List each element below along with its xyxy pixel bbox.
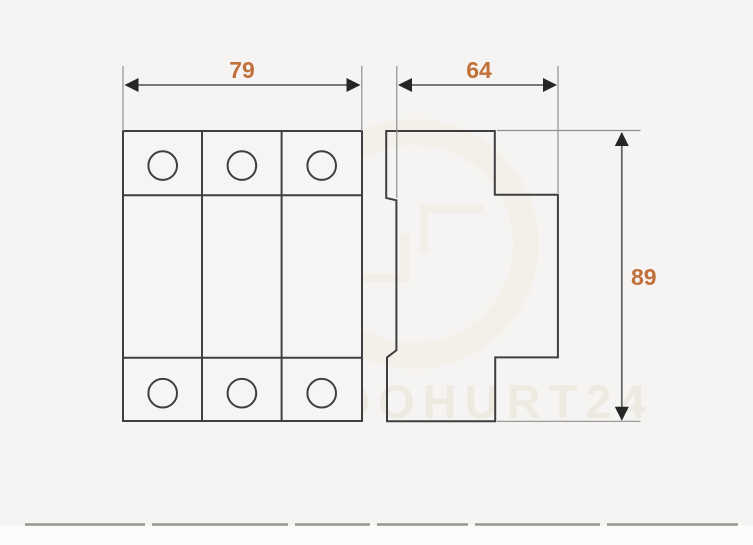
svg-text:79: 79 xyxy=(229,57,255,83)
svg-text:89: 89 xyxy=(631,264,657,290)
svg-text:64: 64 xyxy=(466,57,492,83)
